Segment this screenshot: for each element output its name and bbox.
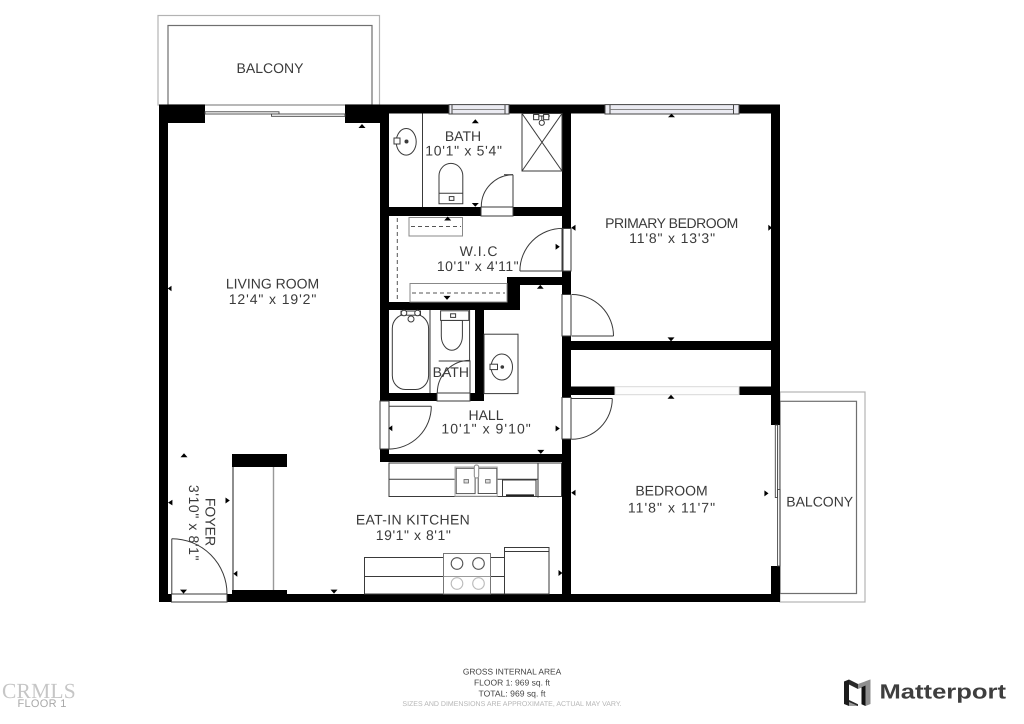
- svg-text:BATH: BATH: [433, 364, 469, 380]
- svg-text:10'1" x 5'4": 10'1" x 5'4": [425, 143, 502, 159]
- svg-text:EAT-IN KITCHEN: EAT-IN KITCHEN: [356, 512, 470, 528]
- svg-text:BEDROOM: BEDROOM: [635, 483, 707, 499]
- svg-text:SIZES AND DIMENSIONS ARE APPRO: SIZES AND DIMENSIONS ARE APPROXIMATE, AC…: [402, 701, 621, 708]
- svg-text:LIVING ROOM: LIVING ROOM: [226, 275, 319, 291]
- svg-text:19'1" x 8'1": 19'1" x 8'1": [376, 527, 452, 543]
- svg-text:PRIMARY BEDROOM: PRIMARY BEDROOM: [605, 215, 738, 231]
- svg-text:BALCONY: BALCONY: [786, 494, 854, 510]
- svg-text:3'10" x 8'1": 3'10" x 8'1": [186, 485, 202, 561]
- svg-text:12'4" x 19'2": 12'4" x 19'2": [229, 291, 317, 307]
- svg-text:W.I.C: W.I.C: [460, 243, 499, 259]
- svg-text:11'8" x 11'7": 11'8" x 11'7": [628, 500, 716, 516]
- svg-text:Matterport: Matterport: [880, 681, 1007, 704]
- svg-text:FOYER: FOYER: [202, 498, 218, 546]
- svg-text:BALCONY: BALCONY: [237, 60, 305, 76]
- svg-text:FLOOR 1: FLOOR 1: [18, 698, 67, 710]
- svg-text:10'1" x 4'11": 10'1" x 4'11": [437, 258, 519, 274]
- svg-text:FLOOR 1: 969 sq. ft: FLOOR 1: 969 sq. ft: [474, 678, 551, 688]
- svg-text:TOTAL: 969 sq. ft: TOTAL: 969 sq. ft: [478, 689, 546, 699]
- svg-text:11'8" x 13'3": 11'8" x 13'3": [629, 230, 716, 246]
- svg-text:GROSS INTERNAL AREA: GROSS INTERNAL AREA: [463, 667, 562, 677]
- svg-text:10'1" x 9'10": 10'1" x 9'10": [441, 420, 531, 436]
